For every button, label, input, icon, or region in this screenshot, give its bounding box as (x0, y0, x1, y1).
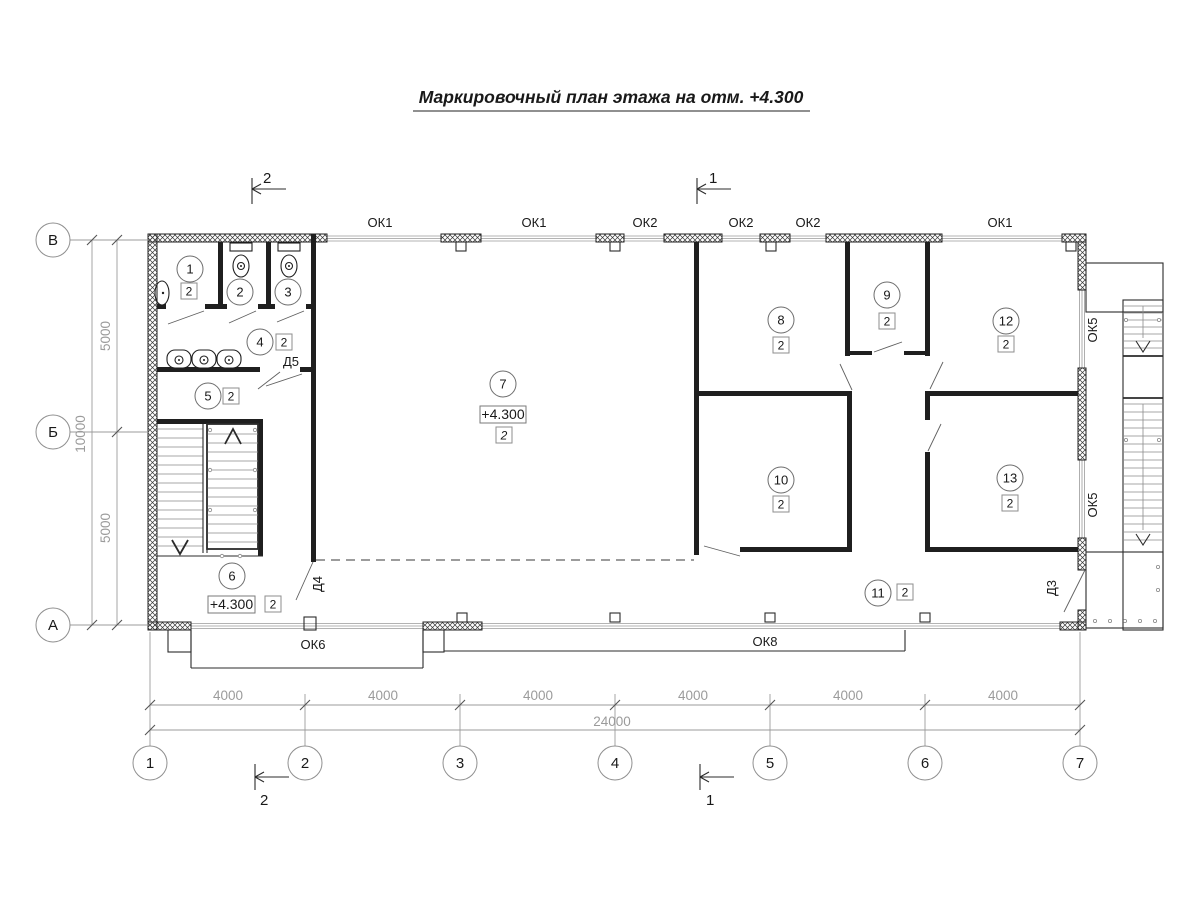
entrance-porch (168, 630, 905, 668)
axis-4: 4 (611, 755, 619, 772)
window-label-ok5-1: ОК5 (1085, 318, 1100, 343)
room-label-10: 10 2 (768, 467, 794, 512)
room-labels: 1 2 2 3 4 2 5 2 6 +4.300 (177, 256, 1023, 613)
svg-text:2: 2 (270, 598, 277, 612)
dim-4000-2: 4000 (368, 688, 398, 703)
axis-2: 2 (301, 755, 309, 772)
svg-text:2: 2 (236, 285, 243, 300)
axis-b: Б (48, 424, 58, 441)
dim-4000-4: 4000 (678, 688, 708, 703)
section-mark-1-bottom: 1 (700, 764, 734, 809)
page-title: Маркировочный план этажа на отм. +4.300 (419, 87, 804, 107)
urinal-icon (155, 280, 169, 306)
svg-text:1: 1 (709, 170, 717, 187)
svg-text:2: 2 (778, 339, 785, 353)
column-marks (456, 242, 1076, 622)
svg-text:4: 4 (256, 335, 263, 350)
door-leaves (168, 311, 1085, 612)
room-label-8: 8 2 (768, 307, 794, 353)
internal-stair (157, 424, 263, 558)
axis-circles-bottom: 1 2 3 4 5 6 7 (133, 746, 1097, 780)
window-label-ok1-1: ОК1 (368, 215, 393, 230)
svg-text:2: 2 (1007, 497, 1014, 511)
svg-text:2: 2 (263, 170, 271, 187)
svg-text:7: 7 (499, 377, 506, 392)
window-label-ok2-3: ОК2 (796, 215, 821, 230)
window-labels: ОК1 ОК1 ОК2 ОК2 ОК2 ОК1 ОК6 ОК8 ОК5 ОК5 (301, 215, 1100, 652)
svg-text:5: 5 (204, 389, 211, 404)
room-label-13: 13 2 (997, 465, 1023, 511)
svg-text:11: 11 (871, 586, 885, 601)
axis-5: 5 (766, 755, 774, 772)
room-label-9: 9 2 (874, 282, 900, 329)
door-label-d5: Д5 (283, 354, 299, 369)
axis-6: 6 (921, 755, 929, 772)
left-dimensions: 5000 5000 10000 В Б А (36, 223, 148, 642)
elevation-mark: +4.300 (210, 596, 253, 612)
axis-3: 3 (456, 755, 464, 772)
axis-v: В (48, 232, 58, 249)
room-label-2: 2 (227, 279, 253, 305)
window-label-ok1-2: ОК1 (522, 215, 547, 230)
bottom-dimensions: 4000 4000 4000 4000 4000 4000 24000 1 2 … (133, 632, 1097, 780)
room-label-5: 5 2 (195, 383, 239, 409)
stair-down-arrow (172, 540, 188, 554)
toilet-icon (278, 243, 300, 277)
drawing-title: Маркировочный план этажа на отм. +4.300 (413, 87, 810, 111)
svg-text:2: 2 (260, 792, 268, 809)
svg-text:2: 2 (884, 315, 891, 329)
svg-text:3: 3 (284, 285, 291, 300)
svg-text:9: 9 (883, 288, 890, 303)
door-label-d4: Д4 (310, 576, 325, 592)
svg-text:2: 2 (1003, 338, 1010, 352)
room-label-3: 3 (275, 279, 301, 305)
window-label-ok8: ОК8 (753, 634, 778, 649)
dim-4000-5: 4000 (833, 688, 863, 703)
room-label-1: 1 2 (177, 256, 203, 299)
window-label-ok2-1: ОК2 (633, 215, 658, 230)
svg-text:2: 2 (902, 586, 909, 600)
dim-5000-1: 5000 (98, 321, 113, 351)
sink-icon (167, 350, 191, 368)
section-mark-1-top: 1 (697, 170, 731, 204)
axis-1: 1 (146, 755, 154, 772)
dim-5000-2: 5000 (98, 513, 113, 543)
dim-4000-1: 4000 (213, 688, 243, 703)
svg-text:1: 1 (186, 262, 193, 277)
room-label-6: 6 +4.300 2 (208, 563, 281, 613)
window-label-ok2-2: ОК2 (729, 215, 754, 230)
svg-text:2: 2 (500, 429, 508, 443)
escape-down-arrow-lower (1136, 534, 1150, 545)
sink-icon (217, 350, 241, 368)
svg-text:2: 2 (778, 498, 785, 512)
section-mark-2-top: 2 (252, 170, 286, 204)
dim-10000-total: 10000 (73, 415, 88, 453)
sink-icon (192, 350, 216, 368)
drawing-sheet: Маркировочный план этажа на отм. +4.300 (0, 0, 1200, 900)
window-label-ok1-3: ОК1 (988, 215, 1013, 230)
dim-24000-total: 24000 (593, 714, 631, 729)
svg-text:2: 2 (186, 285, 193, 299)
window-label-ok5-2: ОК5 (1085, 493, 1100, 518)
room-label-4: 4 2 (247, 329, 292, 355)
svg-text:12: 12 (999, 314, 1013, 329)
window-glazing (191, 236, 1086, 629)
elevation-mark: +4.300 (481, 406, 524, 422)
svg-text:2: 2 (281, 336, 288, 350)
section-mark-2-bottom: 2 (255, 764, 289, 809)
section-marks: 2 1 2 1 (252, 170, 734, 809)
room-label-12: 12 2 (993, 308, 1019, 352)
dim-4000-3: 4000 (523, 688, 553, 703)
svg-text:2: 2 (228, 390, 235, 404)
svg-text:8: 8 (777, 313, 784, 328)
axis-7: 7 (1076, 755, 1084, 772)
svg-text:13: 13 (1003, 471, 1017, 486)
window-label-ok6: ОК6 (301, 637, 326, 652)
escape-down-arrow-upper (1136, 341, 1150, 352)
axis-a: А (48, 617, 58, 634)
room-label-7: 7 +4.300 2 (480, 371, 526, 443)
door-label-d3: Д3 (1044, 580, 1059, 596)
dim-4000-6: 4000 (988, 688, 1018, 703)
floor-plan-svg: Маркировочный план этажа на отм. +4.300 (0, 0, 1200, 900)
svg-text:10: 10 (774, 473, 788, 488)
axis-circles-left: В Б А (36, 223, 70, 642)
window-extent-bracket (444, 630, 905, 651)
toilet-icon (230, 243, 252, 277)
svg-text:6: 6 (228, 569, 235, 584)
svg-text:1: 1 (706, 792, 714, 809)
room-label-11: 11 2 (865, 580, 913, 606)
stair-up-arrow (225, 429, 241, 444)
